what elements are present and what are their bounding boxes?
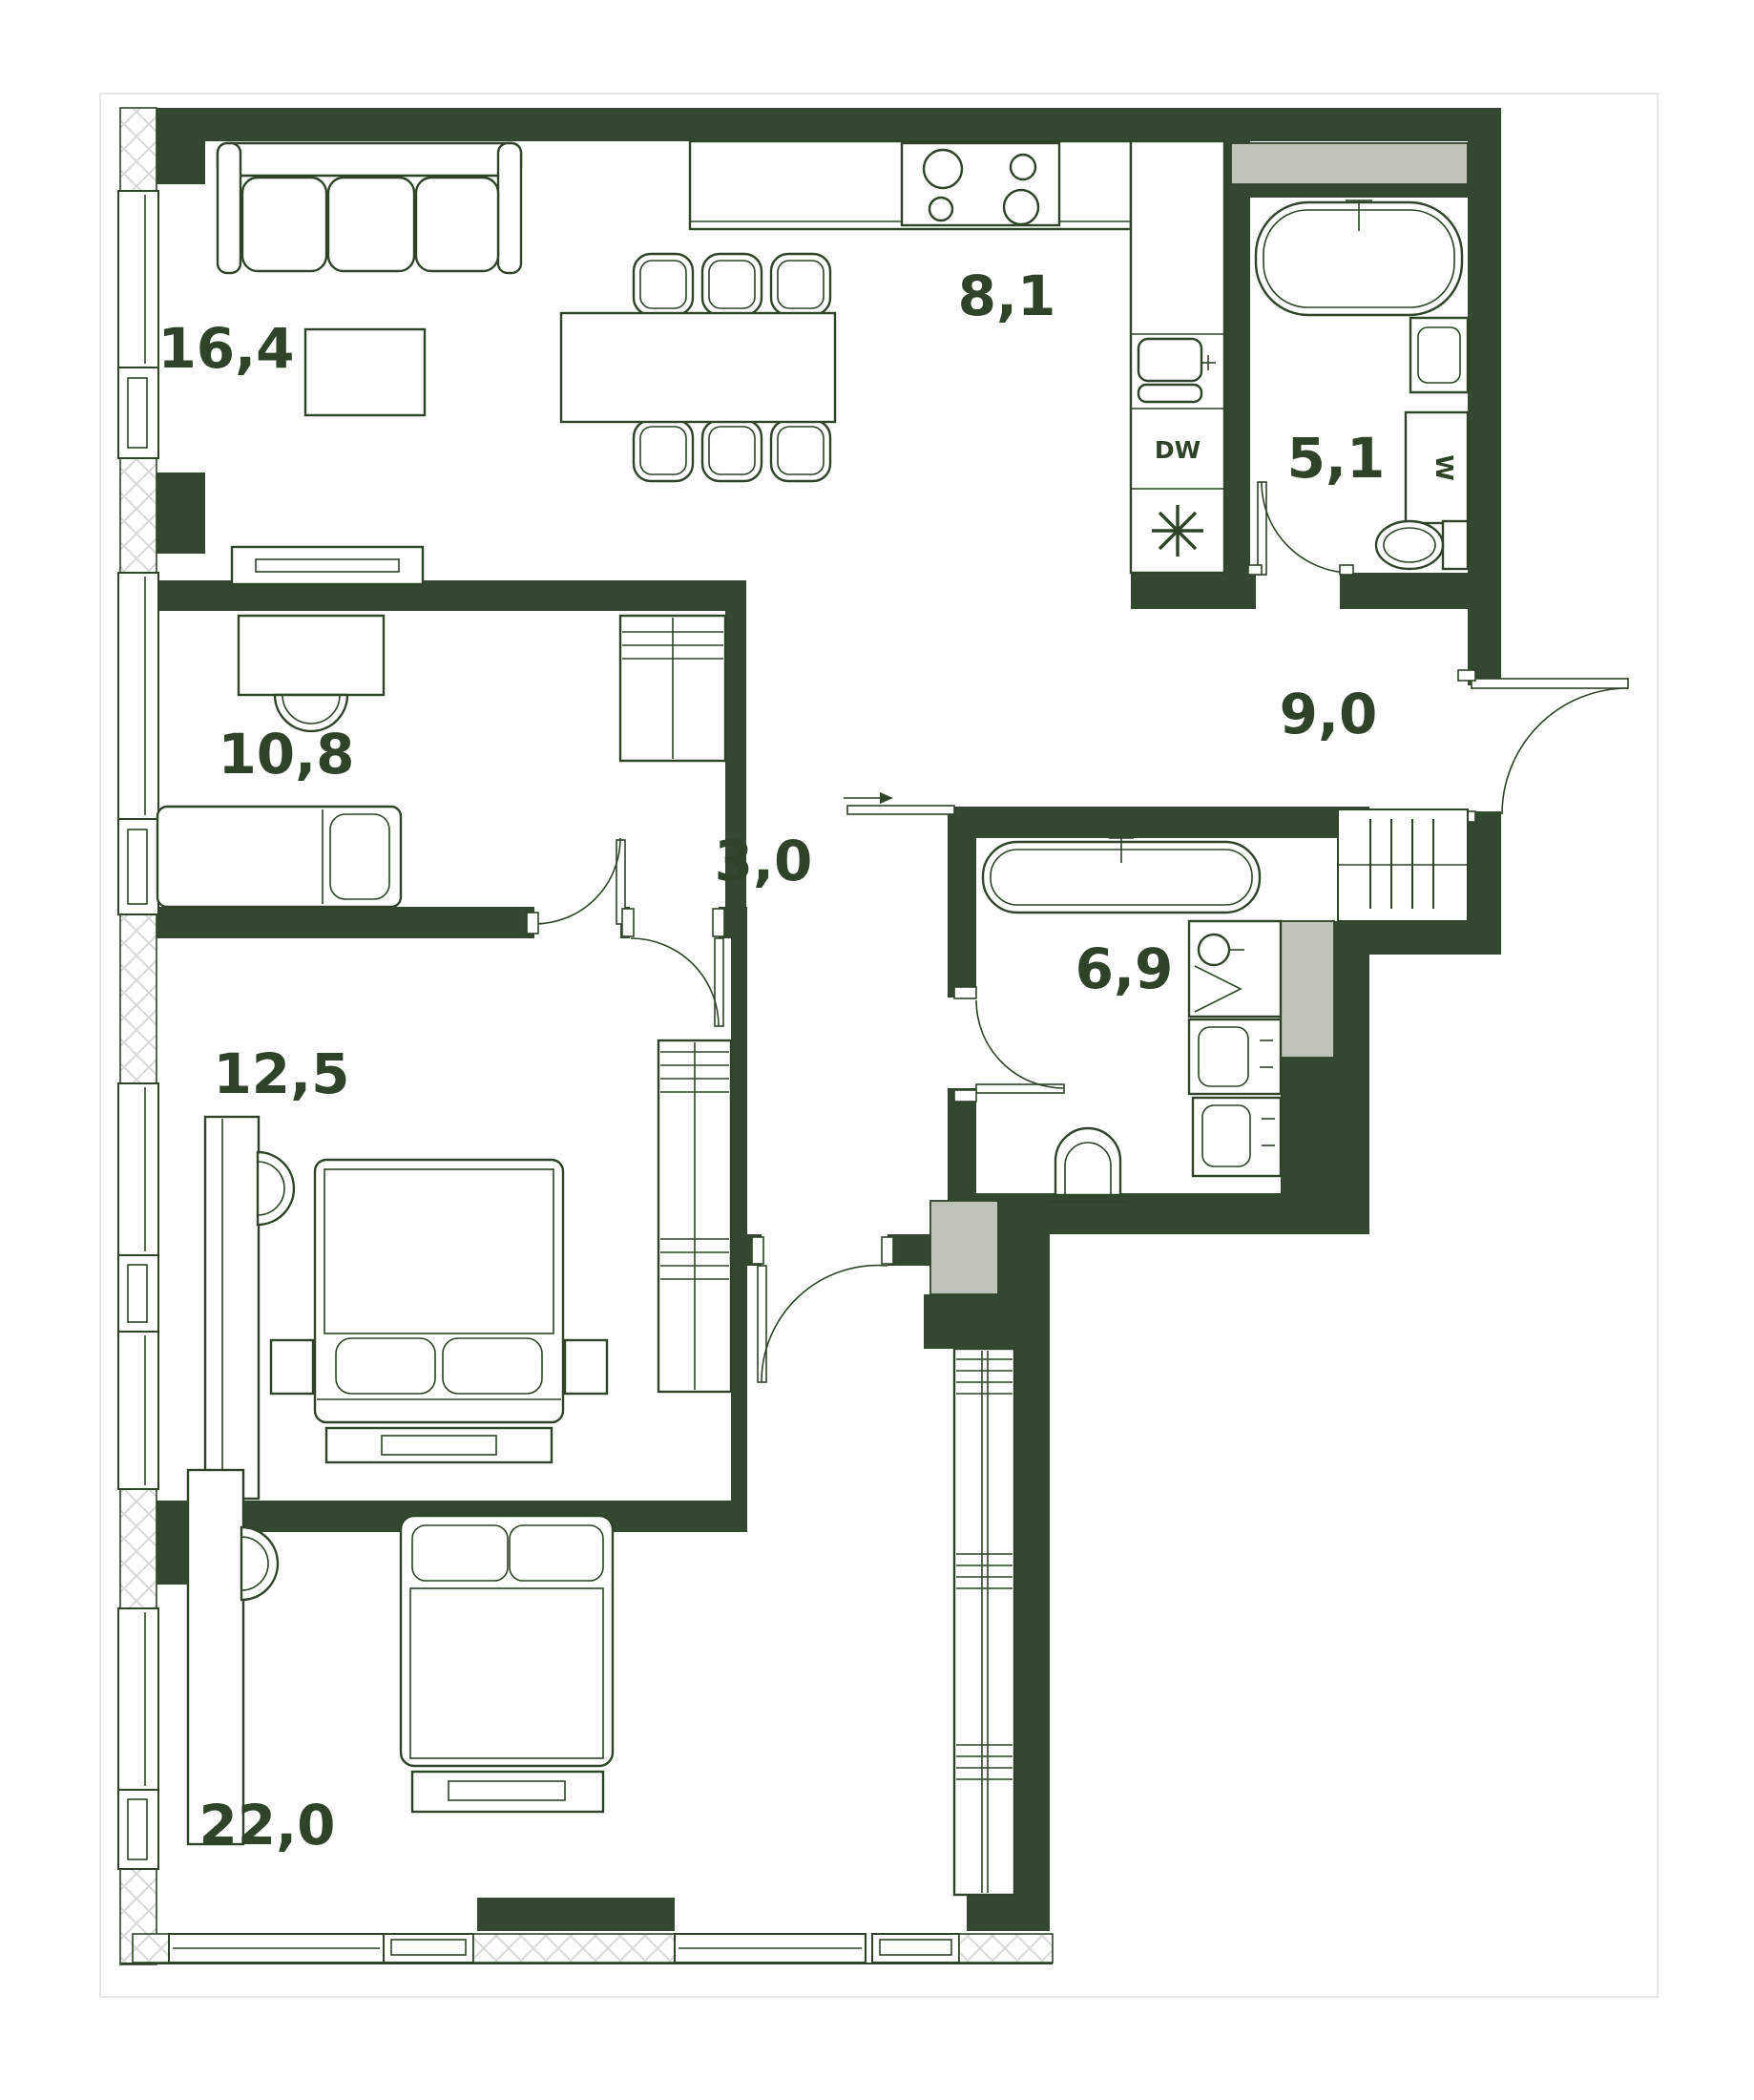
window — [118, 191, 158, 367]
wall — [1231, 184, 1468, 198]
room-label-bedroom: 12,5 — [213, 1041, 349, 1106]
built-in-wardrobe — [954, 1349, 1014, 1895]
shaft — [930, 1201, 998, 1294]
stove — [902, 143, 1059, 225]
wall — [731, 938, 747, 1532]
bathtub — [983, 838, 1260, 913]
nightstand — [271, 1340, 313, 1394]
room-label-bedroom-master: 22,0 — [198, 1793, 335, 1858]
single-bed — [157, 807, 401, 907]
room-label-office: 10,8 — [218, 722, 354, 787]
entry-grate — [1338, 809, 1468, 921]
desk — [239, 616, 384, 695]
wall — [1131, 573, 1256, 609]
washer-label: W — [1430, 454, 1458, 481]
window — [169, 1934, 384, 1963]
hatch-wall — [133, 1934, 169, 1963]
wall — [948, 838, 976, 997]
room-inner-hall: 3,0 — [715, 829, 813, 893]
wall — [1334, 955, 1369, 1234]
window — [384, 1934, 473, 1963]
hatch-wall — [120, 1489, 157, 1608]
desk-chair — [241, 1527, 278, 1600]
wall — [1468, 811, 1501, 921]
toilet — [1376, 521, 1468, 569]
left-exterior-wall — [118, 108, 158, 1964]
wall — [1224, 141, 1250, 573]
room-label-bath-small: 5,1 — [1287, 426, 1386, 491]
room-living: 16,4 — [157, 143, 835, 481]
window — [675, 1934, 866, 1963]
wall — [1281, 1058, 1334, 1193]
bench — [412, 1772, 603, 1812]
wardrobe — [658, 1040, 731, 1392]
dining-chair — [634, 254, 693, 315]
window — [118, 1608, 158, 1790]
room-label-kitchen: 8,1 — [958, 263, 1056, 328]
hatch-wall — [959, 1934, 1053, 1963]
bathtub — [1256, 200, 1462, 315]
double-bed — [315, 1160, 563, 1422]
hatch-wall — [120, 108, 157, 191]
shaft — [1281, 921, 1334, 1058]
desk — [188, 1470, 243, 1844]
bench — [326, 1428, 552, 1462]
room-label-living: 16,4 — [157, 316, 294, 381]
hatch-wall — [473, 1934, 675, 1963]
dining-set — [561, 254, 835, 481]
wardrobe — [620, 616, 725, 761]
window — [118, 367, 158, 458]
door — [527, 838, 625, 934]
room-bath-small: W 5,1 — [1248, 200, 1468, 575]
dining-chair — [771, 254, 830, 315]
dishwasher-label: DW — [1155, 436, 1201, 464]
sink — [1410, 318, 1468, 392]
entry-arrow-icon — [844, 792, 893, 804]
wall — [1334, 921, 1501, 955]
room-label-hall: 9,0 — [1280, 682, 1378, 746]
armchair — [258, 1152, 294, 1225]
wall — [153, 907, 534, 938]
wall — [924, 1294, 1050, 1349]
floor-plan: 16,4 DW 8,1 — [0, 0, 1754, 2100]
wall — [967, 1895, 1050, 1931]
toilet — [1048, 1128, 1128, 1202]
coffee-table — [305, 329, 425, 415]
dining-chair — [771, 420, 830, 481]
floor-plan-page: 16,4 DW 8,1 — [0, 0, 1754, 2100]
room-bedroom: 12,5 — [205, 909, 731, 1499]
door — [622, 909, 724, 1026]
dining-chair — [702, 254, 762, 315]
sink — [1189, 921, 1281, 1017]
entrance-door — [1458, 670, 1628, 822]
cased-opening — [844, 792, 954, 814]
shaft — [1231, 143, 1468, 184]
window — [118, 819, 158, 914]
bottom-exterior-wall — [120, 1934, 1053, 1963]
room-bath-big: 6,9 — [954, 838, 1281, 1202]
window — [118, 1790, 158, 1869]
window — [118, 1083, 158, 1255]
dining-chair — [634, 420, 693, 481]
vanity-sink — [1193, 1098, 1281, 1176]
wall — [1014, 1349, 1050, 1895]
window — [118, 573, 158, 819]
room-label-bath-big: 6,9 — [1075, 936, 1174, 1001]
door — [1248, 482, 1353, 575]
closet — [205, 1117, 259, 1499]
dining-chair — [702, 420, 762, 481]
vanity-sink — [1189, 1019, 1281, 1094]
wall — [948, 807, 1369, 838]
wall — [153, 472, 205, 554]
wall — [153, 108, 1501, 141]
wall — [477, 1898, 675, 1931]
hatch-wall — [120, 458, 157, 573]
wall — [153, 108, 205, 184]
dining-table — [561, 313, 835, 422]
fridge-icon — [1152, 505, 1203, 556]
hatch-wall — [120, 914, 157, 1083]
sofa — [218, 143, 521, 273]
room-label-inner-hall: 3,0 — [715, 829, 813, 893]
window — [118, 1332, 158, 1489]
door — [954, 987, 1064, 1102]
wall — [1340, 573, 1501, 609]
nightstand — [565, 1340, 607, 1394]
window — [872, 1934, 959, 1963]
tv-unit — [232, 547, 423, 584]
dishwasher: DW — [1155, 436, 1201, 464]
door — [752, 1237, 893, 1382]
double-bed — [401, 1516, 613, 1766]
room-bedroom-master: 22,0 — [188, 1237, 1014, 1895]
wall — [948, 1088, 976, 1193]
washing-machine: W — [1406, 412, 1468, 523]
window — [118, 1255, 158, 1332]
